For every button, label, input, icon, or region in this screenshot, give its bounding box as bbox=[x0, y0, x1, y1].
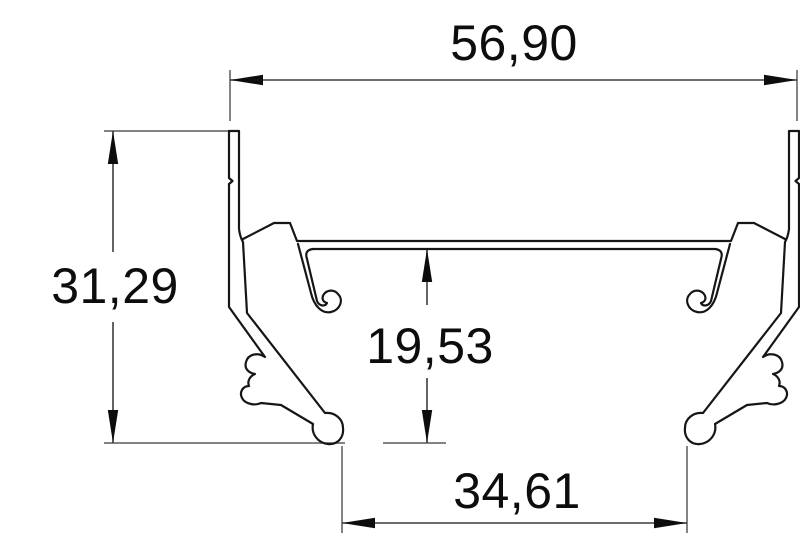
arrowhead-right-icon bbox=[654, 518, 687, 528]
arrowhead-up-icon bbox=[108, 131, 118, 164]
dimension-bottom-width: 34,61 bbox=[342, 446, 687, 533]
arrowhead-left-icon bbox=[342, 518, 375, 528]
dimension-label-overall-width: 56,90 bbox=[450, 15, 578, 71]
profile-drawing: 56,90 31,29 19,53 34,6 bbox=[0, 0, 800, 535]
arrowhead-up-icon bbox=[422, 249, 432, 282]
profile-left-wall bbox=[229, 131, 343, 444]
profile-shelf-underside-clips bbox=[298, 244, 730, 312]
profile-shelf-top bbox=[243, 223, 785, 241]
arrowhead-right-icon bbox=[764, 75, 797, 85]
dimension-label-overall-height: 31,29 bbox=[51, 258, 179, 314]
drawing-canvas: 56,90 31,29 19,53 34,6 bbox=[0, 0, 800, 535]
arrowhead-down-icon bbox=[422, 410, 432, 443]
arrowhead-left-icon bbox=[230, 75, 263, 85]
profile-outline bbox=[229, 131, 799, 444]
dimension-overall-height: 31,29 bbox=[51, 131, 345, 443]
profile-right-wall bbox=[685, 131, 799, 444]
dimension-inner-height: 19,53 bbox=[366, 249, 494, 443]
dimension-label-bottom-width: 34,61 bbox=[453, 463, 581, 519]
arrowhead-down-icon bbox=[108, 410, 118, 443]
dimension-label-inner-height: 19,53 bbox=[366, 318, 494, 374]
dimension-overall-width: 56,90 bbox=[230, 15, 797, 121]
